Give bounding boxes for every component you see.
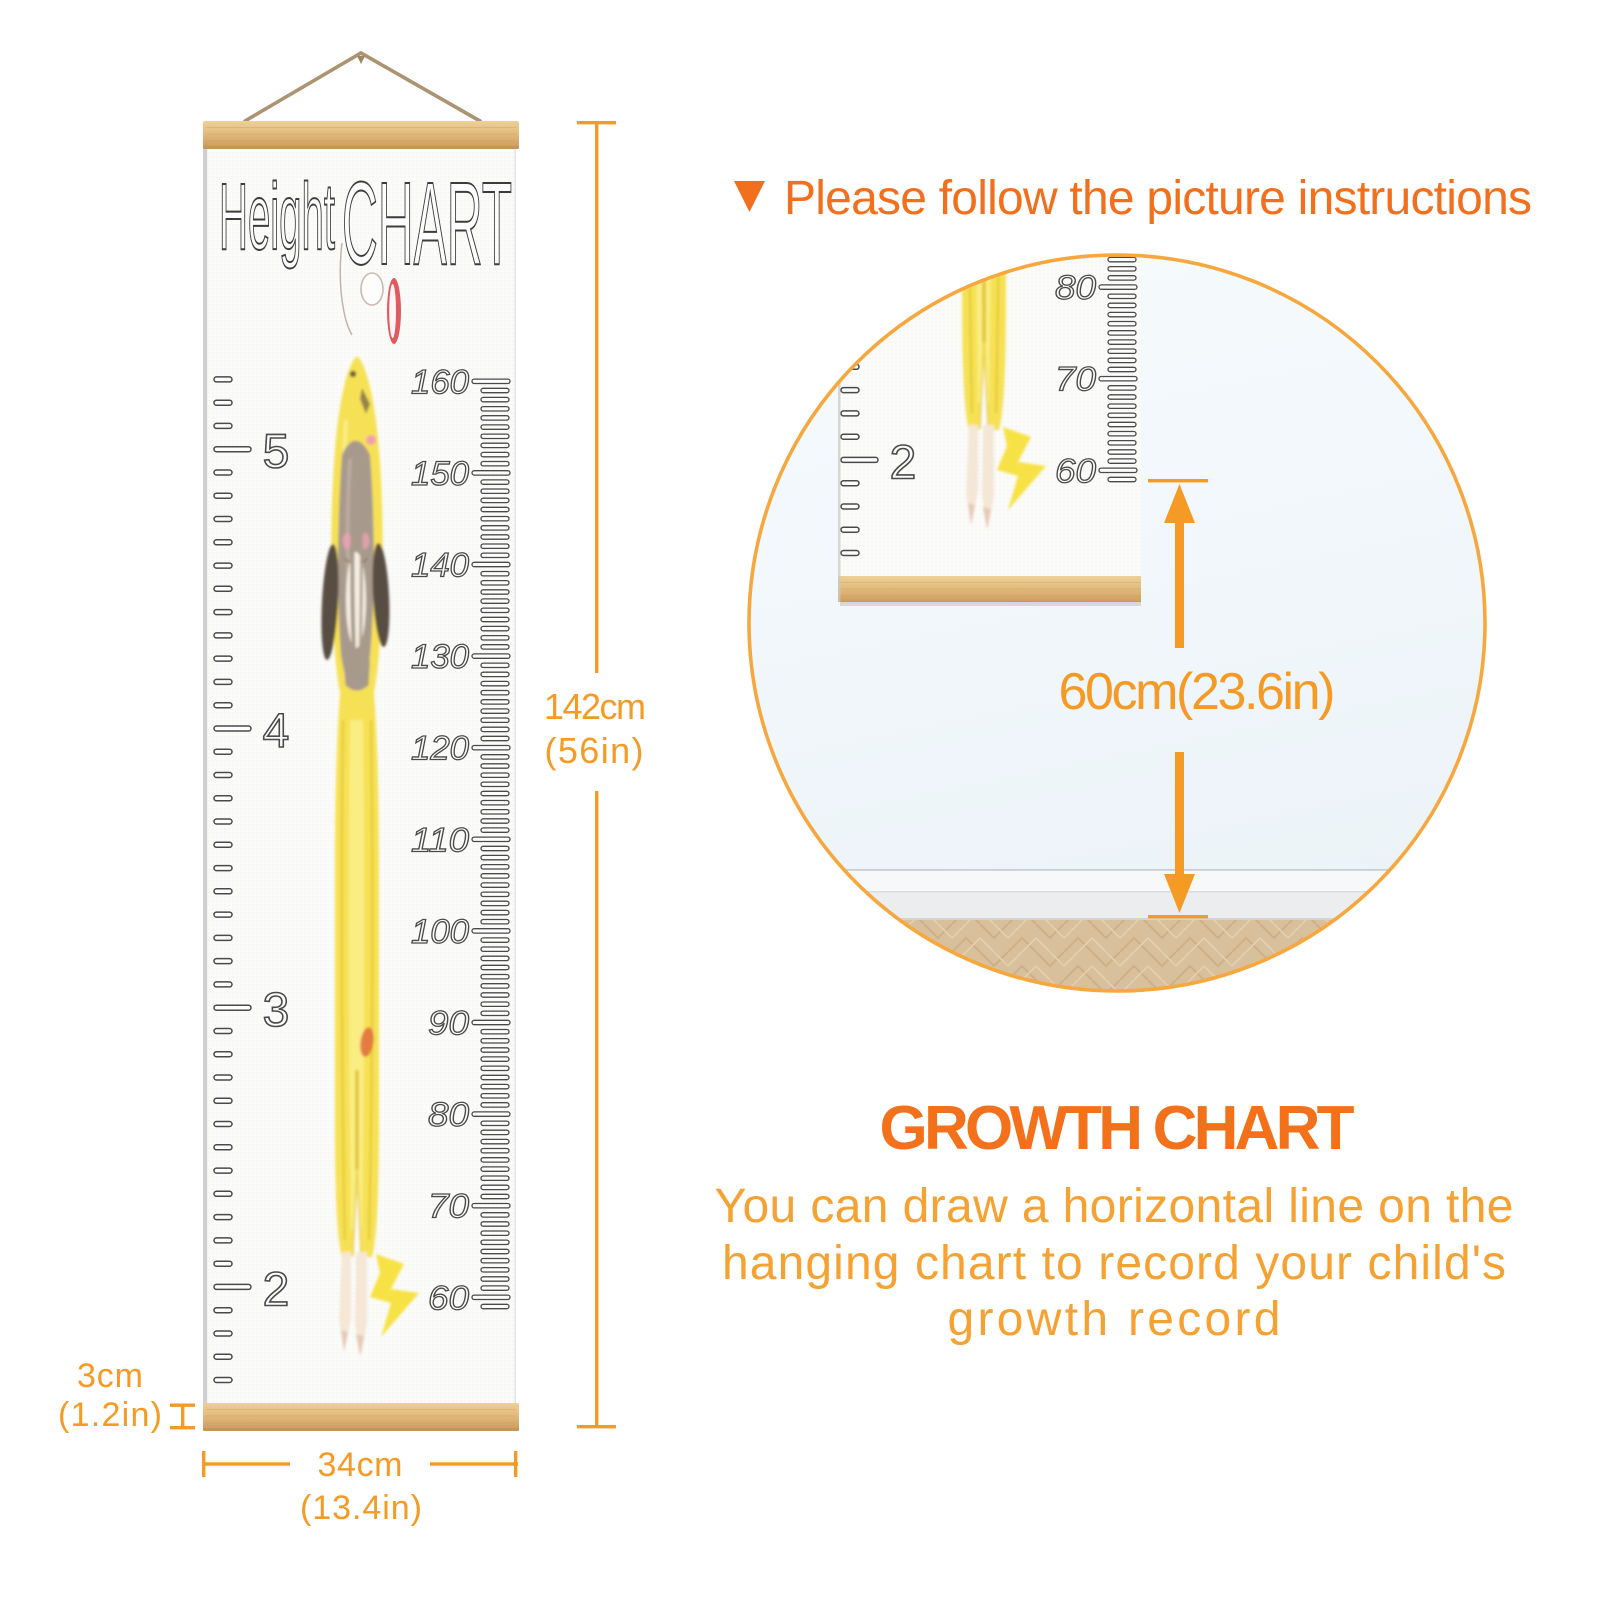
- svg-text:CHART: CHART: [342, 158, 512, 290]
- svg-text:160: 160: [411, 363, 469, 401]
- svg-text:3cm: 3cm: [77, 1357, 143, 1395]
- svg-text:142cm: 142cm: [544, 686, 646, 727]
- svg-text:You can draw a horizontal line: You can draw a horizontal line on the: [715, 1180, 1514, 1233]
- svg-text:Height: Height: [219, 164, 335, 270]
- svg-text:Please follow the picture inst: Please follow the picture instructions: [784, 172, 1532, 225]
- svg-text:140: 140: [411, 547, 469, 585]
- svg-text:4: 4: [263, 705, 290, 758]
- svg-text:90: 90: [428, 1005, 469, 1043]
- svg-text:120: 120: [411, 730, 469, 768]
- svg-text:hanging chart to record your c: hanging chart to record your child's: [722, 1237, 1506, 1290]
- svg-text:(13.4in): (13.4in): [300, 1489, 422, 1527]
- svg-text:growth record: growth record: [948, 1293, 1281, 1346]
- svg-text:150: 150: [411, 455, 469, 493]
- svg-text:70: 70: [428, 1188, 469, 1226]
- svg-text:60: 60: [428, 1279, 469, 1317]
- svg-text:60cm(23.6in): 60cm(23.6in): [1059, 663, 1336, 721]
- svg-text:(1.2in): (1.2in): [58, 1396, 162, 1434]
- svg-text:3: 3: [263, 984, 290, 1037]
- svg-text:5: 5: [263, 426, 290, 479]
- svg-text:100: 100: [411, 913, 469, 951]
- svg-text:130: 130: [411, 638, 469, 676]
- svg-text:110: 110: [411, 821, 469, 859]
- svg-text:34cm: 34cm: [318, 1446, 403, 1484]
- svg-text:GROWTH CHART: GROWTH CHART: [880, 1094, 1355, 1163]
- svg-text:(56in): (56in): [545, 730, 644, 771]
- svg-text:2: 2: [263, 1264, 290, 1317]
- svg-text:80: 80: [428, 1096, 469, 1134]
